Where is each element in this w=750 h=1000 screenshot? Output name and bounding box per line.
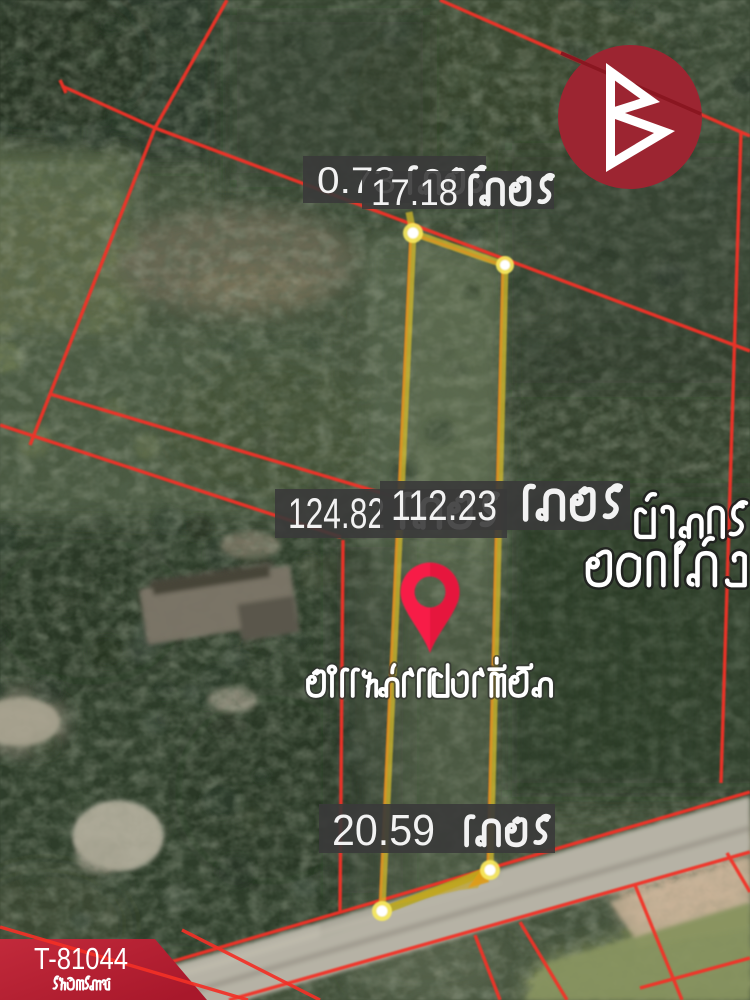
svg-text:20.59: 20.59 (332, 806, 435, 855)
svg-text:T-81044: T-81044 (34, 941, 128, 976)
svg-text:17.18: 17.18 (371, 172, 458, 213)
svg-text:112.23: 112.23 (391, 482, 497, 530)
svg-text:124.82: 124.82 (288, 490, 385, 538)
